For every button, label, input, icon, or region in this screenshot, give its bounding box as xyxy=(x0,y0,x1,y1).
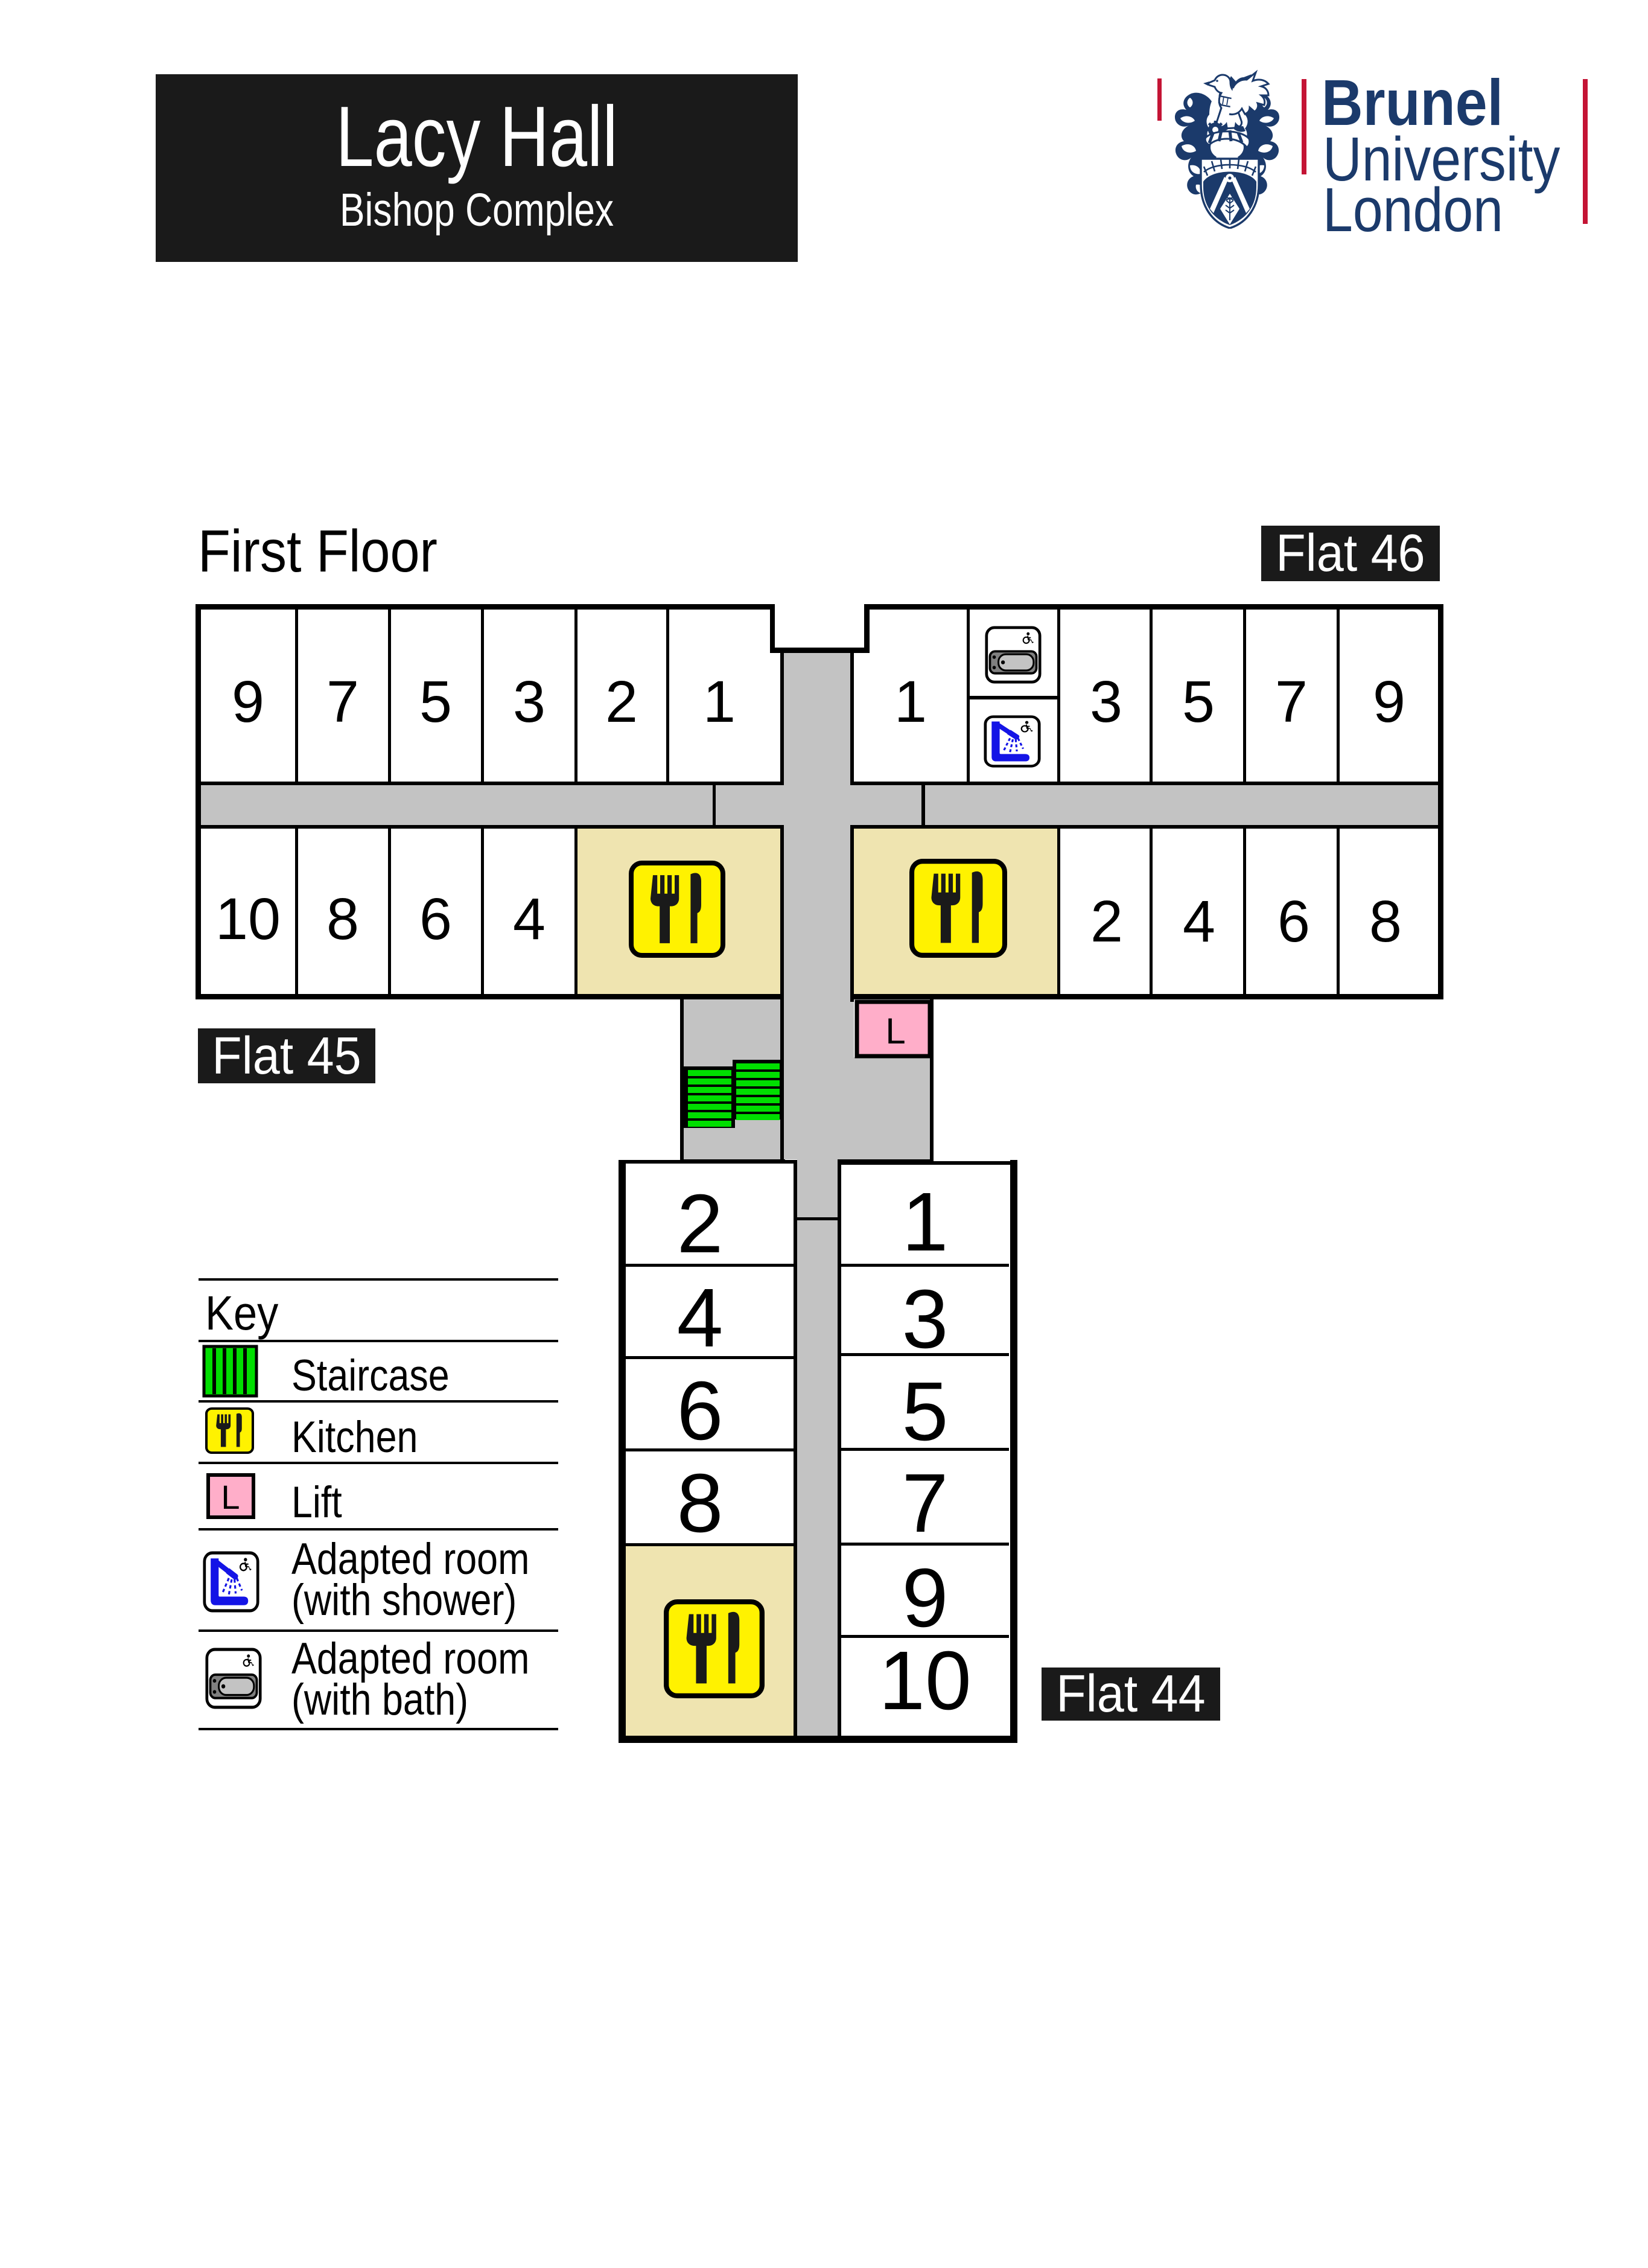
svg-text:L: L xyxy=(221,1478,240,1516)
svg-text:1: 1 xyxy=(894,669,927,734)
svg-text:9: 9 xyxy=(1373,669,1405,734)
svg-text:6: 6 xyxy=(419,886,452,952)
svg-text:4: 4 xyxy=(677,1272,724,1365)
svg-text:3: 3 xyxy=(1090,669,1122,734)
svg-text:6: 6 xyxy=(1277,888,1310,954)
svg-text:7: 7 xyxy=(1275,669,1308,734)
svg-text:2: 2 xyxy=(1090,888,1123,954)
svg-text:8: 8 xyxy=(677,1457,724,1550)
svg-text:2: 2 xyxy=(605,669,638,734)
svg-text:7: 7 xyxy=(326,669,359,734)
svg-text:4: 4 xyxy=(1183,888,1215,954)
svg-text:1: 1 xyxy=(703,669,736,734)
svg-text:3: 3 xyxy=(902,1273,949,1366)
svg-text:8: 8 xyxy=(1369,888,1402,954)
svg-text:10: 10 xyxy=(215,886,281,952)
svg-text:5: 5 xyxy=(902,1365,949,1458)
svg-text:8: 8 xyxy=(326,886,359,952)
svg-text:10: 10 xyxy=(879,1634,972,1727)
svg-text:5: 5 xyxy=(1182,669,1215,734)
svg-text:7: 7 xyxy=(902,1457,949,1550)
svg-text:9: 9 xyxy=(902,1552,949,1645)
svg-text:1: 1 xyxy=(902,1176,949,1269)
svg-text:6: 6 xyxy=(677,1365,724,1457)
svg-text:4: 4 xyxy=(513,886,546,952)
svg-text:9: 9 xyxy=(232,669,264,734)
svg-text:2: 2 xyxy=(677,1177,724,1270)
svg-text:3: 3 xyxy=(513,669,546,734)
svg-text:L: L xyxy=(885,1011,905,1051)
svg-text:5: 5 xyxy=(419,669,452,734)
